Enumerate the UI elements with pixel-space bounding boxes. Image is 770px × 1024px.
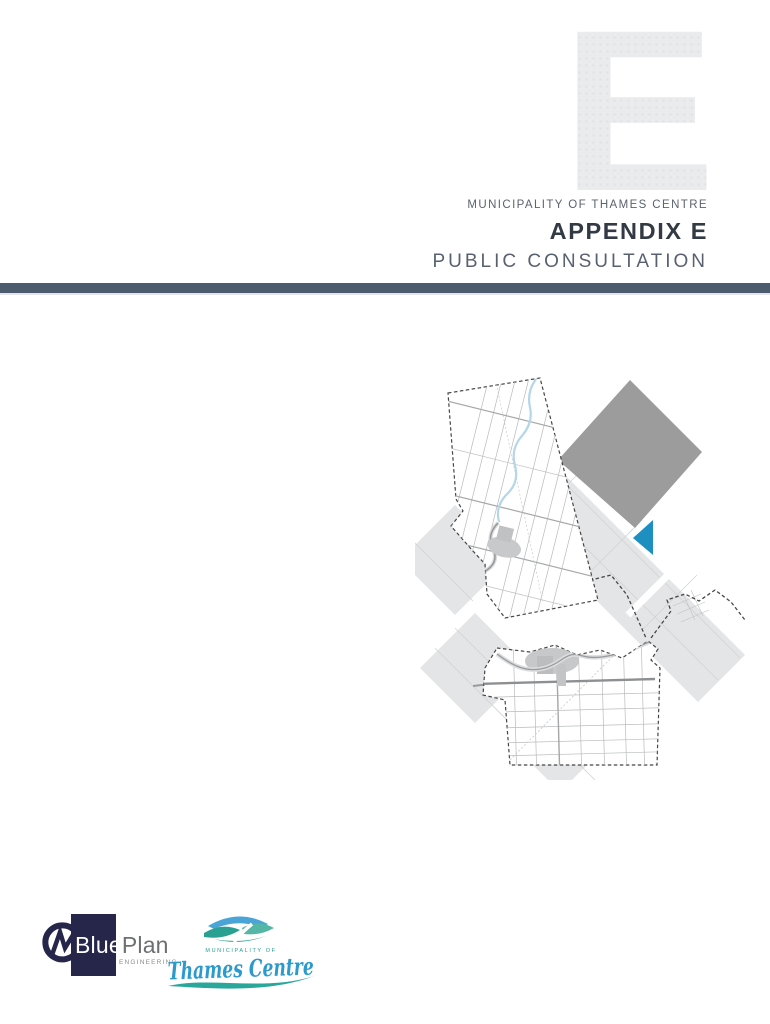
cover-kicker: MUNICIPALITY OF THAMES CENTRE [432, 199, 708, 211]
thames-centre-logo: MUNICIPALITY OF Thames Centre [164, 906, 318, 998]
blueplan-word-plan: Plan [122, 932, 169, 958]
report-cover-page: E MUNICIPALITY OF THAMES CENTRE APPENDIX… [0, 0, 770, 1024]
blueplan-word-blue: Blue [75, 932, 122, 958]
accent-bar [0, 283, 770, 295]
cover-title-block: MUNICIPALITY OF THAMES CENTRE APPENDIX E… [432, 199, 708, 273]
thames-centre-landscape-icon [204, 916, 274, 942]
thames-centre-logo-svg: MUNICIPALITY OF Thames Centre [164, 906, 318, 998]
thames-centre-name: Thames Centre [167, 951, 314, 985]
cover-subtitle: PUBLIC CONSULTATION [432, 251, 708, 273]
cover-map-graphic [415, 368, 750, 780]
municipality-lower [475, 634, 665, 770]
cover-title: APPENDIX E [432, 218, 708, 245]
blueplan-wordmark: BluePlan [75, 932, 169, 959]
gm-blueplan-logo: BluePlan ENGINEERING [38, 911, 178, 985]
